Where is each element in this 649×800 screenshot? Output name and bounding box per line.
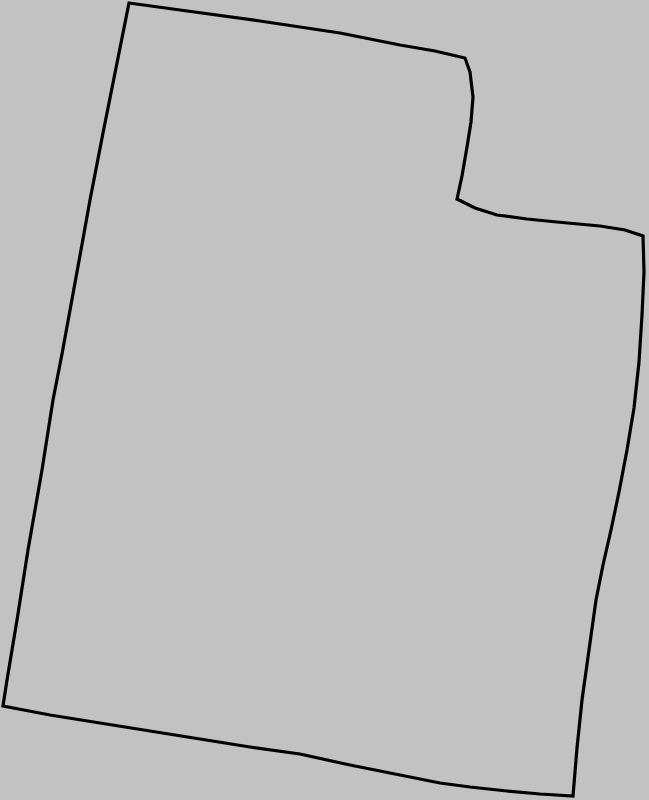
utah-state-outline [3, 3, 644, 796]
map-svg [0, 0, 649, 800]
map-canvas [0, 0, 649, 800]
